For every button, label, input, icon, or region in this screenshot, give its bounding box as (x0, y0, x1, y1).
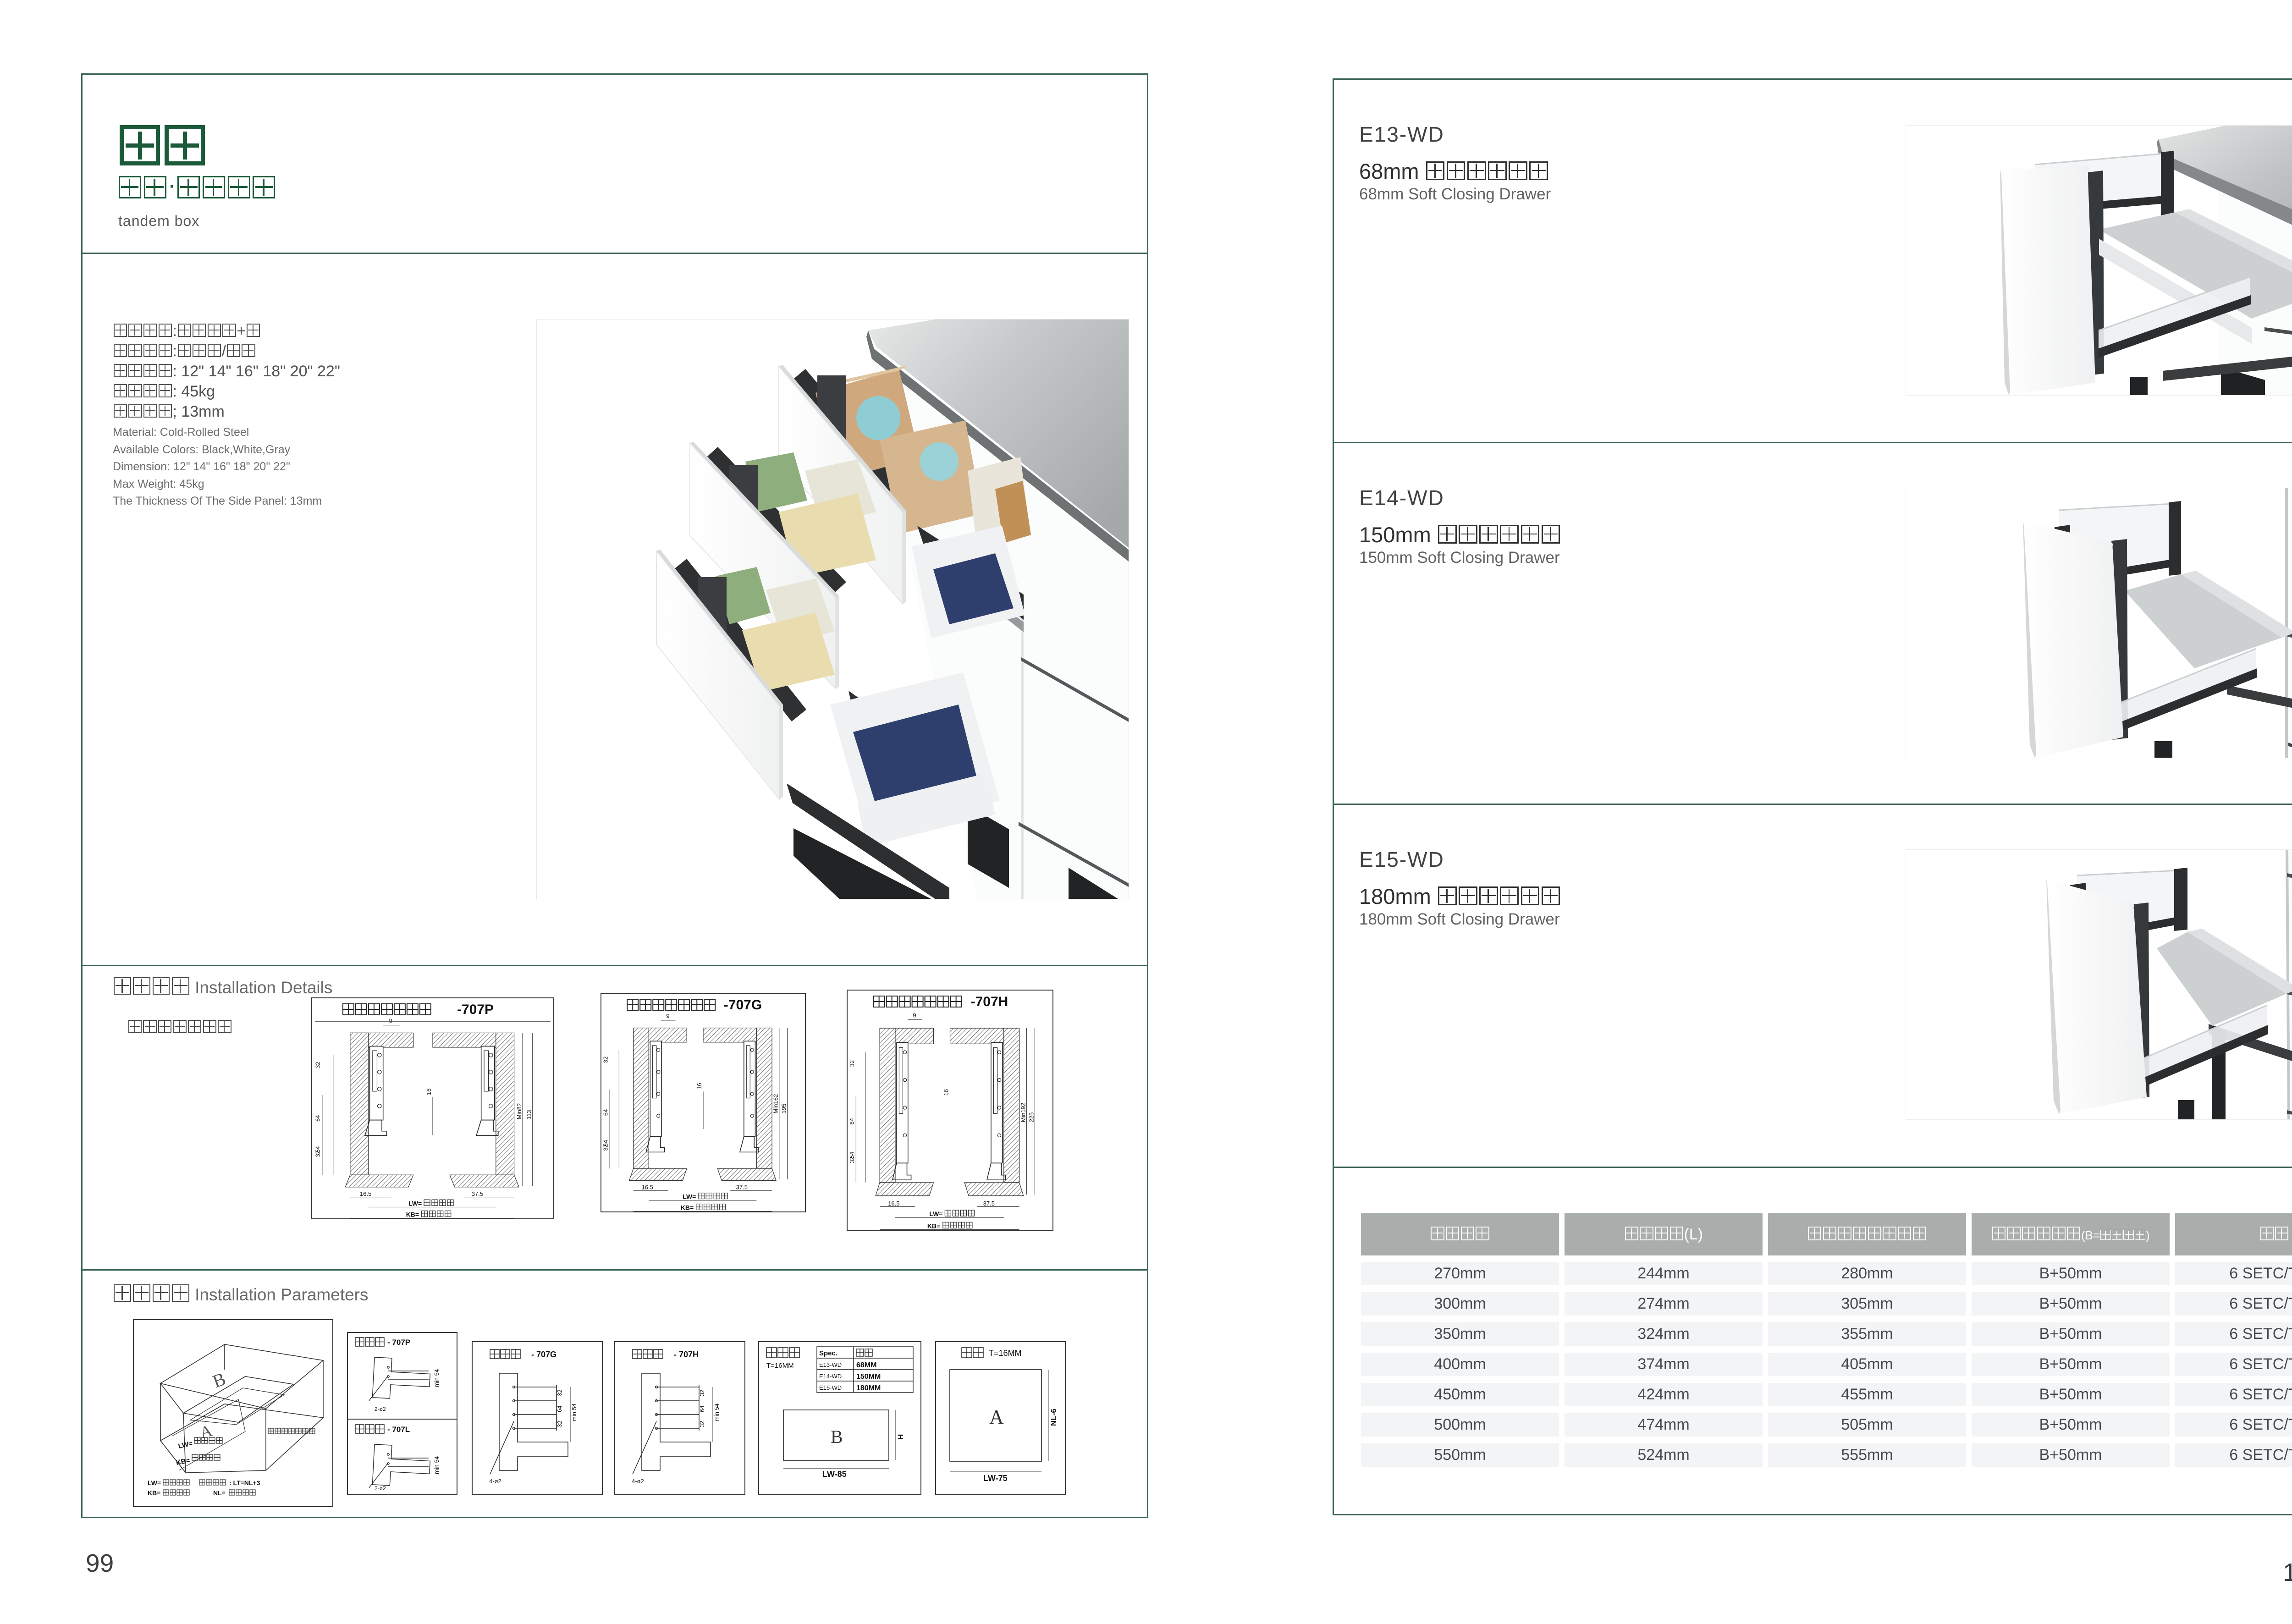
svg-text:B: B (831, 1426, 843, 1447)
svg-text:E14-WD: E14-WD (819, 1373, 842, 1380)
svg-text:225: 225 (1028, 1112, 1035, 1123)
svg-text:54: 54 (848, 1152, 855, 1158)
svg-text:E15-WD: E15-WD (819, 1384, 842, 1391)
svg-text:LW=: LW= (408, 1200, 422, 1207)
svg-text:4-ø2: 4-ø2 (632, 1478, 644, 1485)
svg-text:16.5: 16.5 (360, 1190, 371, 1197)
svg-text:37.5: 37.5 (983, 1200, 995, 1207)
svg-text:KB=: KB= (148, 1489, 160, 1497)
svg-text:- 707L: - 707L (387, 1425, 410, 1434)
svg-text:32: 32 (556, 1390, 563, 1396)
svg-text:-707H: -707H (971, 994, 1008, 1009)
svg-text:32: 32 (314, 1062, 321, 1068)
svg-text:Min82: Min82 (516, 1103, 523, 1119)
svg-text:T=16MM: T=16MM (986, 1349, 1022, 1358)
svg-text:LW=: LW= (683, 1193, 696, 1200)
svg-text:16: 16 (425, 1088, 432, 1095)
svg-text:64: 64 (556, 1406, 563, 1412)
svg-text:min 54: min 54 (433, 1456, 440, 1474)
svg-text:195: 195 (781, 1104, 788, 1114)
svg-text:32: 32 (848, 1060, 855, 1067)
svg-text:-707G: -707G (724, 997, 762, 1013)
svg-text:64: 64 (314, 1115, 321, 1122)
svg-text:min 54: min 54 (571, 1404, 578, 1421)
svg-text:Min162: Min162 (772, 1094, 779, 1114)
svg-text:37.5: 37.5 (736, 1184, 748, 1191)
svg-text:KB=: KB= (927, 1222, 940, 1229)
svg-text:Min192: Min192 (1019, 1103, 1026, 1123)
svg-text:H: H (896, 1434, 905, 1440)
svg-text:54: 54 (602, 1140, 609, 1146)
svg-text:LW-75: LW-75 (983, 1474, 1008, 1483)
svg-text:32: 32 (556, 1421, 563, 1427)
svg-text:32: 32 (699, 1390, 705, 1396)
svg-text:KB=: KB= (406, 1211, 419, 1218)
svg-text:NL=: NL= (213, 1489, 226, 1497)
svg-text:- 707P: - 707P (387, 1338, 410, 1347)
svg-text:KB=: KB= (681, 1204, 694, 1211)
svg-text:T=16MM: T=16MM (766, 1362, 794, 1370)
svg-text:- 707H: - 707H (674, 1350, 699, 1359)
svg-text:LW=: LW= (148, 1479, 161, 1486)
svg-text:4-ø2: 4-ø2 (489, 1478, 501, 1485)
svg-text:37.5: 37.5 (472, 1190, 483, 1197)
svg-text:LW=: LW= (929, 1210, 942, 1217)
svg-text:113: 113 (525, 1110, 532, 1119)
svg-text:A: A (989, 1406, 1004, 1428)
svg-text:9: 9 (913, 1012, 916, 1018)
svg-text:min 54: min 54 (433, 1369, 440, 1387)
svg-text:Spec.: Spec. (819, 1349, 837, 1357)
svg-text:54: 54 (314, 1146, 321, 1152)
svg-text:16: 16 (696, 1083, 703, 1089)
svg-text:min 54: min 54 (713, 1404, 720, 1421)
svg-text:64: 64 (602, 1109, 609, 1116)
svg-text:9: 9 (666, 1013, 669, 1019)
svg-text:16.5: 16.5 (642, 1184, 653, 1191)
svg-text:180MM: 180MM (856, 1384, 881, 1392)
svg-text:- 707G: - 707G (531, 1350, 556, 1359)
svg-text:NL-6: NL-6 (1049, 1409, 1058, 1426)
svg-text:68MM: 68MM (856, 1361, 876, 1369)
svg-text:64: 64 (699, 1406, 705, 1412)
svg-text:64: 64 (848, 1118, 855, 1124)
svg-text:LW-85: LW-85 (822, 1470, 847, 1479)
svg-text:: LT=NL+3: : LT=NL+3 (229, 1479, 260, 1486)
svg-text:E13-WD: E13-WD (819, 1361, 842, 1368)
svg-text:2-ø2: 2-ø2 (375, 1485, 386, 1492)
svg-text:16: 16 (943, 1089, 950, 1096)
svg-text:32: 32 (699, 1421, 705, 1427)
svg-text:150MM: 150MM (856, 1373, 881, 1381)
svg-text:2-ø2: 2-ø2 (375, 1406, 386, 1412)
svg-text:9: 9 (389, 1018, 392, 1024)
svg-text:16.5: 16.5 (888, 1200, 899, 1207)
svg-text:-707P: -707P (457, 1002, 494, 1017)
svg-text:32: 32 (602, 1057, 609, 1063)
